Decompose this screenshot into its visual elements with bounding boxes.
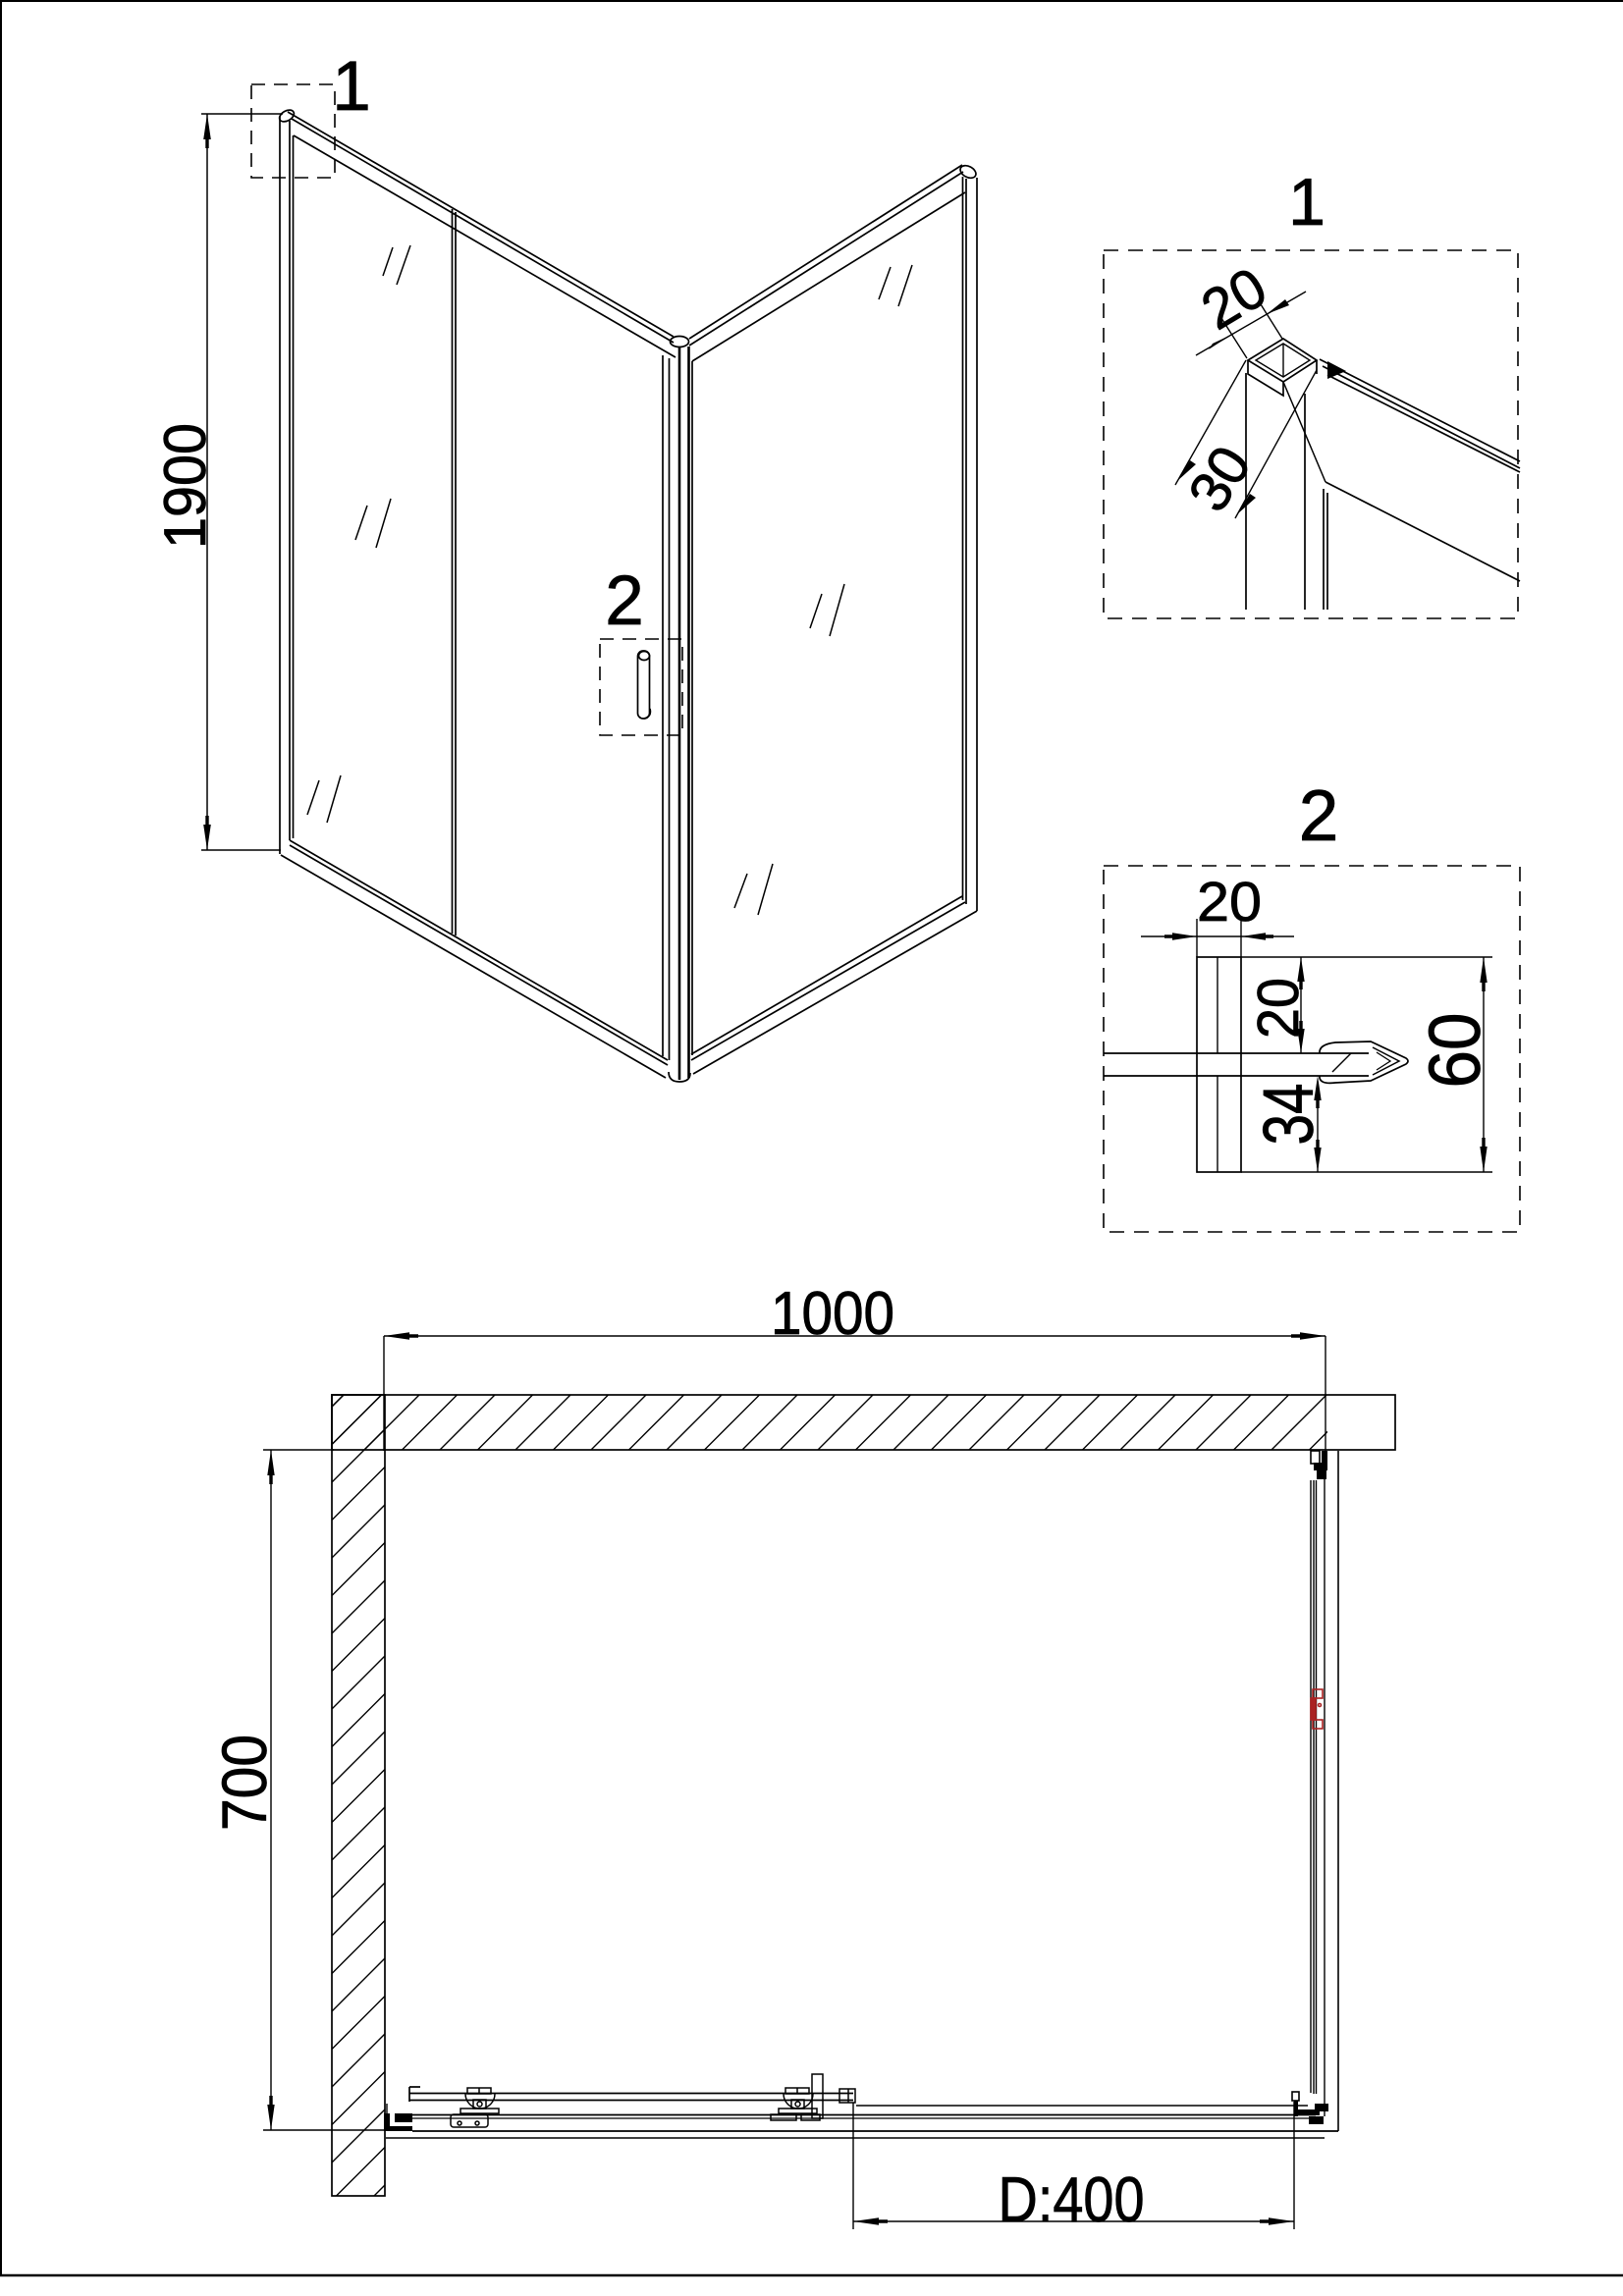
svg-text:1: 1 [332, 48, 371, 126]
svg-text:34: 34 [1250, 1084, 1328, 1146]
svg-text:700: 700 [209, 1735, 280, 1831]
svg-text:1000: 1000 [771, 1280, 894, 1348]
svg-text:20: 20 [1246, 978, 1311, 1039]
svg-text:1: 1 [1288, 165, 1325, 240]
svg-text:60: 60 [1414, 1013, 1495, 1089]
svg-text:2: 2 [1299, 776, 1339, 856]
svg-text:D:400: D:400 [999, 2163, 1145, 2235]
svg-text:20: 20 [1197, 871, 1262, 934]
svg-text:2: 2 [605, 562, 644, 640]
svg-text:1900: 1900 [152, 423, 218, 549]
